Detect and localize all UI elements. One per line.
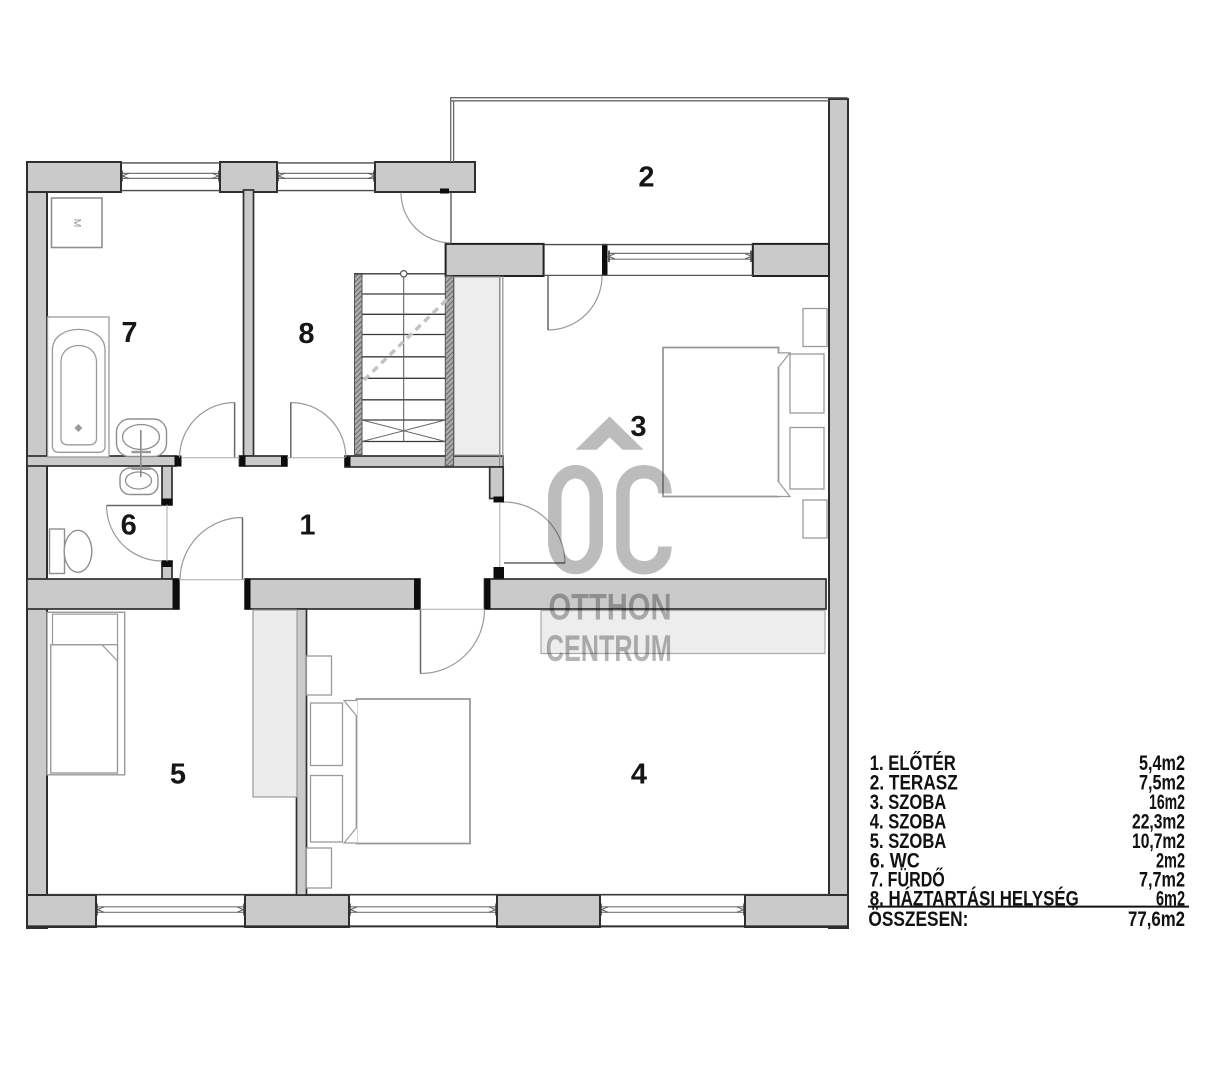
svg-text:7: 7 bbox=[121, 317, 137, 349]
svg-text:5: 5 bbox=[170, 758, 186, 790]
svg-text:77,6m2: 77,6m2 bbox=[1128, 908, 1185, 931]
svg-text:CENTRUM: CENTRUM bbox=[546, 628, 672, 669]
svg-text:1: 1 bbox=[299, 509, 315, 541]
svg-text:ÖSSZESEN:: ÖSSZESEN: bbox=[868, 908, 968, 931]
svg-text:4: 4 bbox=[631, 758, 647, 790]
svg-text:2: 2 bbox=[638, 161, 654, 193]
svg-text:M: M bbox=[71, 219, 83, 228]
svg-text:OTTHON: OTTHON bbox=[549, 586, 672, 627]
svg-text:3: 3 bbox=[630, 411, 646, 443]
svg-text:8: 8 bbox=[298, 318, 314, 350]
svg-text:6: 6 bbox=[121, 509, 137, 541]
